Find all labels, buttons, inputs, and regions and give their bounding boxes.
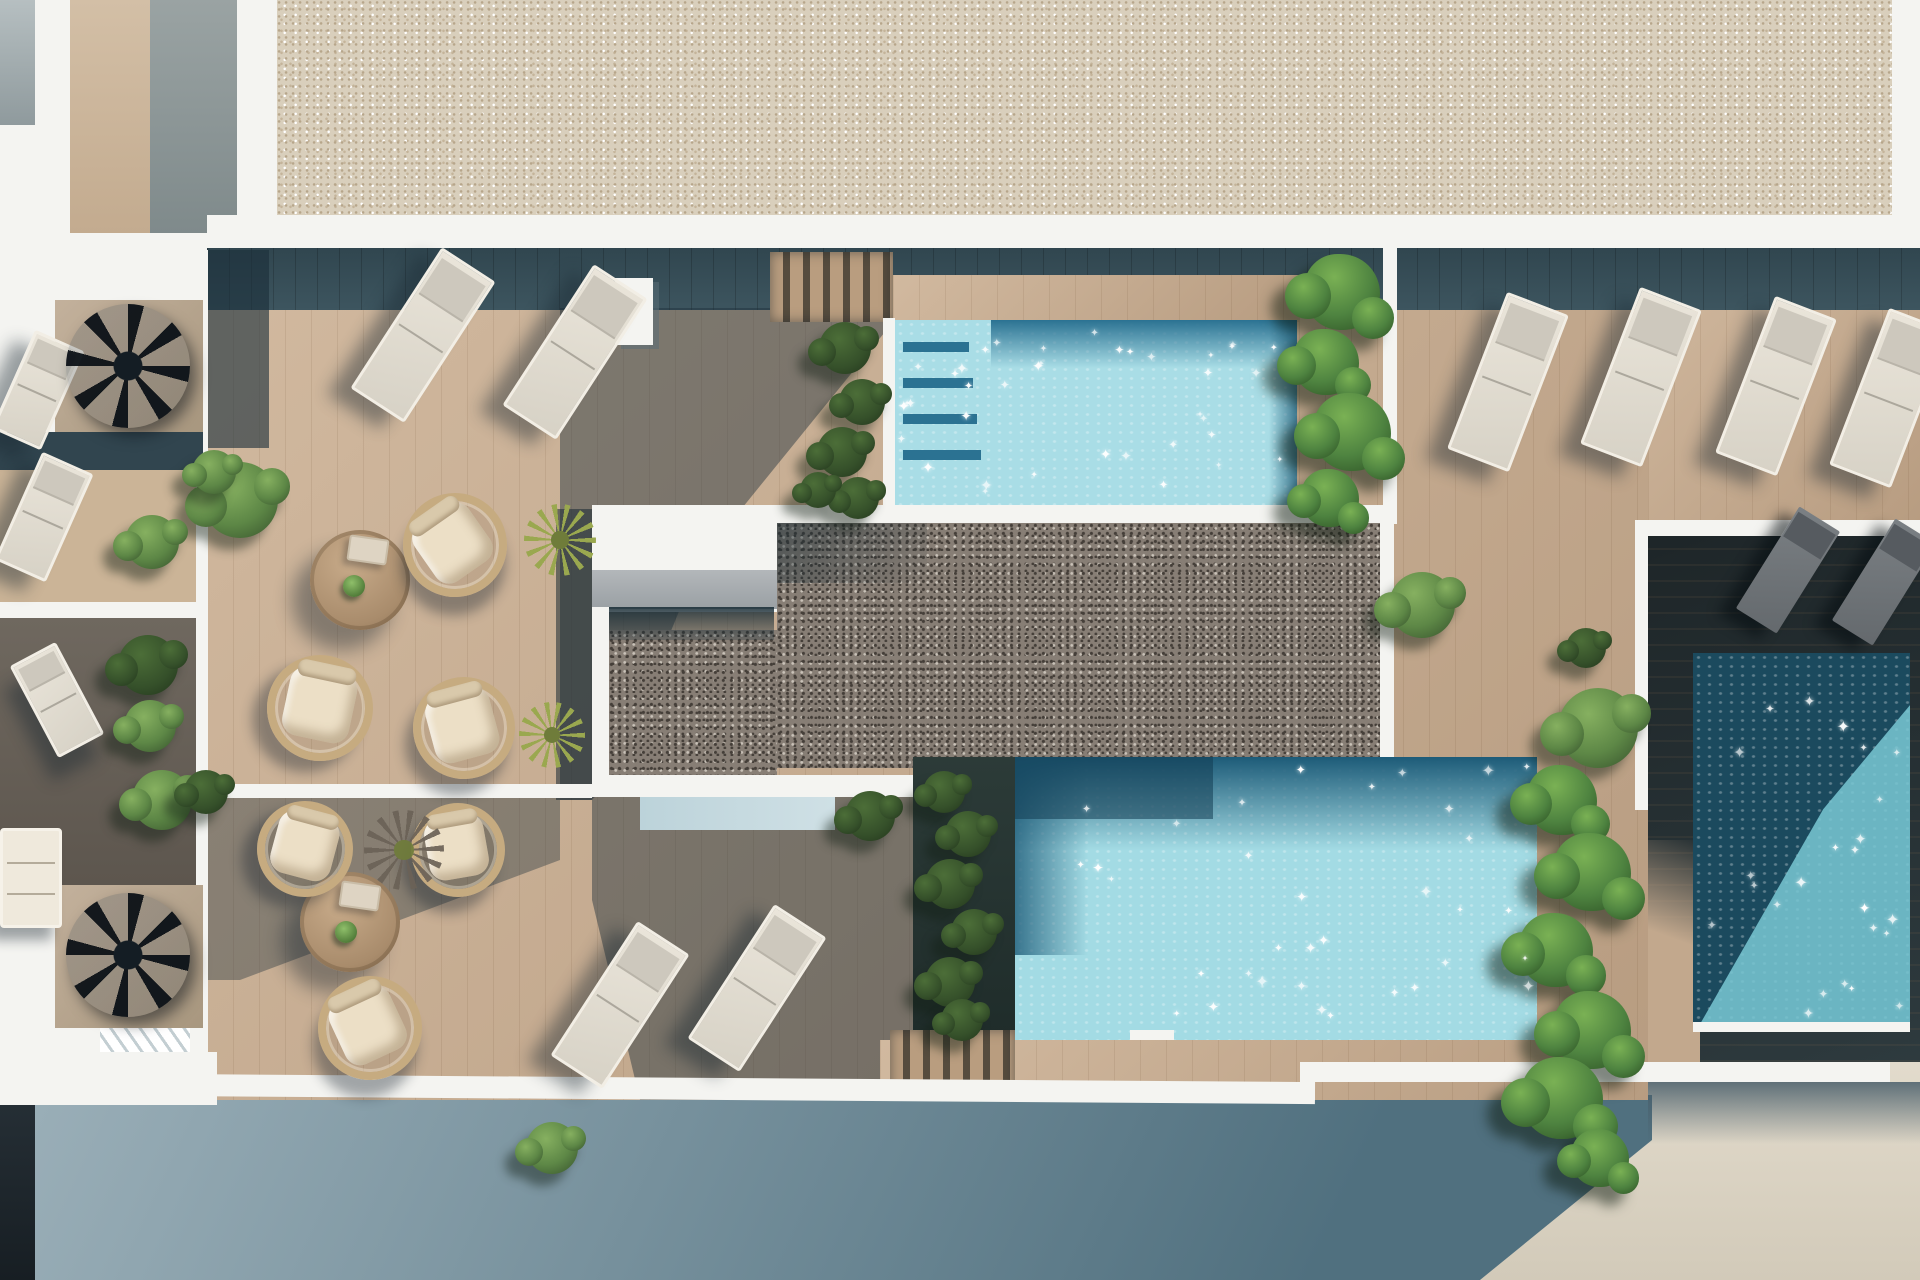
water-sparkle: ✦	[1090, 329, 1099, 339]
sun-lounger	[1829, 308, 1920, 488]
lounger-seam	[1481, 376, 1531, 397]
water-sparkle: ✦	[1100, 449, 1112, 463]
sun-lounger	[0, 452, 94, 583]
water-sparkle: ✦	[1207, 351, 1214, 359]
water-sparkle: ✦	[1082, 804, 1091, 815]
lounger-head-cushion	[419, 259, 485, 322]
water-sparkle: ✦	[1818, 989, 1828, 1001]
water-sparkle: ✦	[981, 344, 990, 355]
bush-plant	[819, 322, 871, 374]
water-sparkle: ✦	[1244, 850, 1254, 862]
water-sparkle: ✦	[1893, 749, 1901, 759]
water-sparkle: ✦	[1276, 455, 1283, 463]
lounger-seam	[597, 994, 639, 1023]
rattan-basket-chair	[257, 645, 383, 771]
water-sparkle: ✦	[1168, 439, 1178, 451]
bush-plant	[192, 450, 236, 494]
bush-plant	[945, 811, 991, 857]
water-sparkle: ✦	[1504, 907, 1512, 917]
bush-plant	[1566, 628, 1606, 668]
water-sparkle: ✦	[1368, 783, 1376, 793]
bush-plant	[839, 379, 885, 425]
water-sparkle: ✦	[1397, 767, 1407, 779]
water-sparkle: ✦	[1244, 970, 1252, 980]
lounger-head-cushion	[1495, 303, 1559, 361]
water-sparkle: ✦	[1251, 367, 1262, 380]
water-sparkle: ✦	[1120, 450, 1131, 463]
water-sparkle: ✦	[1523, 763, 1531, 773]
lounger-head-cushion	[1628, 298, 1692, 356]
bush-plant	[1558, 688, 1638, 768]
water-sparkle: ✦	[1228, 344, 1236, 353]
water-sparkle: ✦	[1203, 367, 1213, 379]
water-sparkle: ✦	[1207, 430, 1216, 441]
water-sparkle: ✦	[1837, 719, 1850, 735]
ivy-climber-plant	[1301, 469, 1359, 527]
water-sparkle: ✦	[1108, 876, 1115, 885]
water-sparkle: ✦	[1440, 957, 1450, 969]
water-sparkle: ✦	[1040, 344, 1048, 353]
water-sparkle: ✦	[1444, 803, 1455, 816]
sofa-cushion-seam	[7, 862, 54, 864]
water-sparkle: ✦	[1883, 930, 1891, 939]
table-plant	[343, 575, 365, 597]
water-sparkle: ✦	[980, 479, 993, 494]
water-sparkle: ✦	[1238, 797, 1247, 808]
lounger-seam	[22, 510, 63, 530]
bush-plant	[951, 909, 997, 955]
water-sparkle: ✦	[1296, 981, 1307, 994]
water-sparkle: ✦	[1409, 982, 1419, 994]
water-sparkle: ✦	[964, 380, 973, 391]
bush-plant	[923, 771, 965, 813]
water-sparkle: ✦	[1199, 414, 1208, 424]
bush-plant	[125, 515, 179, 569]
water-sparkle: ✦	[1886, 912, 1899, 928]
water-sparkle: ✦	[1772, 900, 1781, 911]
lounger-seam	[17, 383, 56, 402]
water-sparkle: ✦	[922, 462, 934, 477]
water-sparkle: ✦	[1859, 902, 1871, 916]
ivy-climber-plant	[1519, 913, 1593, 987]
bush-plant	[837, 477, 879, 519]
ivy-climber-plant	[1553, 833, 1631, 911]
water-sparkle: ✦	[1197, 970, 1205, 980]
water-sparkle: ✦	[1114, 344, 1124, 356]
water-sparkle: ✦	[1255, 974, 1268, 990]
water-sparkle: ✦	[1270, 345, 1278, 354]
dark-lounger-head	[1783, 511, 1836, 559]
water-sparkle: ✦	[1794, 875, 1807, 891]
water-sparkle: ✦	[1032, 360, 1044, 374]
water-sparkle: ✦	[1172, 819, 1182, 831]
bush-plant	[526, 1122, 578, 1174]
lounger-head-cushion	[33, 461, 85, 505]
sun-lounger	[550, 921, 689, 1089]
private-dark-lounger	[1832, 518, 1920, 645]
water-sparkle: ✦	[1076, 861, 1084, 871]
props-layer: ✦✦✦✦✦✦✦✦✦✦✦✦✦✦✦✦✦✦✦✦✦✦✦✦✦✦✦✦✦✦✦✦✦✦✦✦✦✦✦✦…	[0, 0, 1920, 1280]
lounger-seam	[1749, 380, 1799, 401]
water-sparkle: ✦	[960, 411, 971, 424]
water-sparkle: ✦	[1000, 379, 1010, 391]
lounger-head-cushion	[1763, 307, 1827, 365]
bush-plant	[800, 472, 836, 508]
water-sparkle: ✦	[1707, 920, 1717, 932]
lounger-seam	[399, 324, 443, 353]
water-sparkle: ✦	[1146, 351, 1156, 363]
water-sparkle: ✦	[1482, 763, 1495, 779]
water-sparkle: ✦	[1854, 833, 1866, 847]
water-sparkle: ✦	[1803, 1008, 1814, 1022]
spiky-plant	[364, 810, 444, 890]
spiky-plant	[519, 702, 585, 768]
water-sparkle: ✦	[1750, 881, 1759, 891]
outdoor-sofa	[0, 828, 62, 928]
water-sparkle: ✦	[1390, 987, 1400, 999]
water-sparkle: ✦	[1326, 1012, 1334, 1022]
water-sparkle: ✦	[1895, 1001, 1905, 1013]
water-sparkle: ✦	[1318, 936, 1329, 950]
water-sparkle: ✦	[1296, 764, 1306, 776]
bush-plant	[124, 700, 176, 752]
water-sparkle: ✦	[1126, 348, 1134, 358]
water-sparkle: ✦	[1804, 696, 1816, 710]
water-sparkle: ✦	[992, 337, 1001, 348]
lounger-head-cushion	[571, 276, 637, 339]
lounger-head-cushion	[18, 651, 66, 692]
spiral-staircase	[66, 893, 190, 1017]
sun-lounger	[1580, 287, 1702, 467]
spiky-plant	[524, 504, 596, 576]
lounger-seam	[551, 341, 595, 370]
water-sparkle: ✦	[1831, 844, 1839, 854]
bush-plant	[845, 791, 895, 841]
water-sparkle: ✦	[1092, 862, 1103, 876]
sun-lounger	[1715, 296, 1837, 476]
water-sparkle: ✦	[1522, 954, 1529, 962]
lounger-seam	[1614, 371, 1664, 392]
table-plant	[335, 921, 357, 943]
table-tray	[346, 534, 389, 565]
lounger-head-cushion	[753, 915, 816, 975]
ivy-climber-plant	[1527, 765, 1597, 835]
water-sparkle: ✦	[1765, 704, 1774, 715]
water-sparkle: ✦	[1274, 943, 1283, 954]
bush-plant	[1389, 572, 1455, 638]
lounger-head-cushion	[1877, 319, 1920, 377]
lounger-head-cushion	[616, 932, 679, 992]
water-sparkle: ✦	[1215, 462, 1222, 471]
ivy-climber-plant	[1293, 329, 1359, 395]
sofa-cushion-seam	[7, 893, 54, 895]
bush-plant	[925, 859, 975, 909]
sun-lounger	[687, 904, 826, 1072]
ivy-climber-plant	[1571, 1129, 1629, 1187]
dark-lounger-head	[1879, 523, 1920, 571]
water-sparkle: ✦	[950, 369, 959, 380]
bush-plant	[817, 427, 867, 477]
bush-plant	[941, 999, 983, 1041]
water-sparkle: ✦	[903, 401, 911, 410]
water-sparkle: ✦	[1875, 795, 1884, 805]
water-sparkle: ✦	[1733, 745, 1746, 760]
spiral-staircase	[66, 304, 190, 428]
water-sparkle: ✦	[1859, 744, 1867, 754]
rattan-basket-chair	[402, 666, 527, 791]
water-sparkle: ✦	[1159, 480, 1169, 491]
water-sparkle: ✦	[1464, 833, 1474, 845]
rattan-basket-chair	[301, 959, 439, 1097]
sun-lounger	[1447, 292, 1569, 472]
water-sparkle: ✦	[1305, 942, 1317, 956]
water-sparkle: ✦	[1840, 979, 1850, 991]
sun-lounger	[350, 247, 495, 423]
water-sparkle: ✦	[1522, 979, 1535, 995]
water-sparkle: ✦	[913, 363, 922, 374]
ivy-climber-plant	[1304, 254, 1380, 330]
bush-plant	[118, 635, 178, 695]
sun-lounger	[10, 642, 105, 758]
lounger-seam	[734, 977, 776, 1006]
water-sparkle: ✦	[1030, 472, 1037, 481]
sun-lounger	[502, 264, 647, 440]
private-dark-lounger	[1736, 506, 1840, 633]
ivy-climber-plant	[1313, 393, 1391, 471]
lounger-seam	[40, 692, 77, 713]
rooftop-render: Rooftop terrace render: wooden deck with…	[0, 0, 1920, 1280]
water-sparkle: ✦	[1456, 906, 1463, 915]
water-sparkle: ✦	[897, 434, 906, 445]
water-sparkle: ✦	[1173, 1011, 1180, 1020]
water-sparkle: ✦	[1419, 884, 1432, 900]
water-sparkle: ✦	[1296, 891, 1307, 904]
water-sparkle: ✦	[1208, 1001, 1219, 1015]
water-sparkle: ✦	[1869, 923, 1879, 935]
bush-plant	[184, 770, 228, 814]
lounger-seam	[1863, 392, 1913, 413]
ivy-climber-plant	[1521, 1057, 1603, 1139]
